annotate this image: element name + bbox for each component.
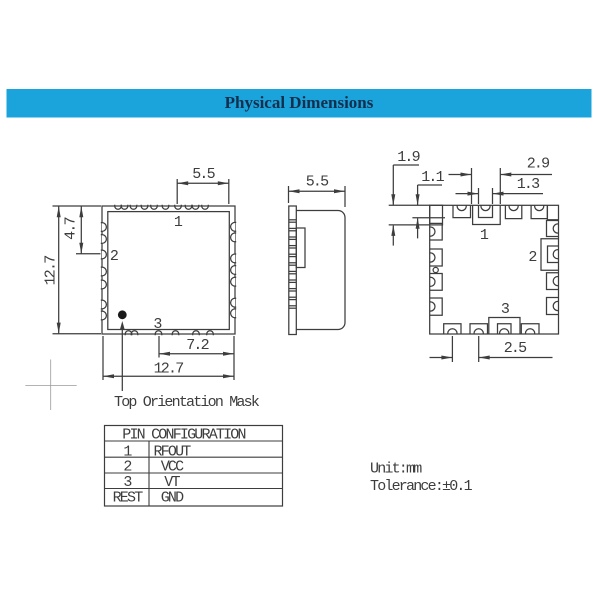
svg-text:2.5: 2.5: [504, 340, 527, 357]
svg-text:Top Orientation Mask: Top Orientation Mask: [114, 394, 260, 411]
svg-text:12.7: 12.7: [154, 361, 184, 378]
svg-text:3: 3: [501, 301, 510, 318]
svg-text:VT: VT: [164, 474, 180, 491]
svg-text:3: 3: [153, 316, 162, 333]
svg-text:1: 1: [480, 227, 489, 244]
svg-text:2.9: 2.9: [527, 156, 549, 173]
svg-text:GND: GND: [161, 490, 184, 507]
svg-text:2: 2: [110, 248, 118, 265]
svg-text:7.2: 7.2: [186, 337, 208, 354]
svg-text:REST: REST: [113, 490, 144, 507]
svg-text:1: 1: [174, 214, 183, 231]
svg-text:1.1: 1.1: [421, 169, 444, 186]
svg-text:2: 2: [123, 459, 131, 476]
svg-text:12.7: 12.7: [43, 256, 60, 286]
svg-text:4.7: 4.7: [63, 217, 80, 239]
svg-text:5.5: 5.5: [192, 166, 215, 183]
svg-text:Unit:mm: Unit:mm: [370, 461, 422, 478]
svg-text:1.9: 1.9: [397, 149, 419, 166]
svg-text:VCC: VCC: [161, 459, 184, 476]
svg-text:Tolerance:±0.1: Tolerance:±0.1: [370, 478, 473, 495]
svg-text:1.3: 1.3: [517, 176, 540, 193]
svg-text:PIN CONFIGURATION: PIN CONFIGURATION: [122, 427, 245, 444]
svg-text:2: 2: [528, 249, 536, 266]
svg-text:Physical Dimensions: Physical Dimensions: [225, 93, 374, 112]
svg-text:5.5: 5.5: [306, 174, 329, 191]
